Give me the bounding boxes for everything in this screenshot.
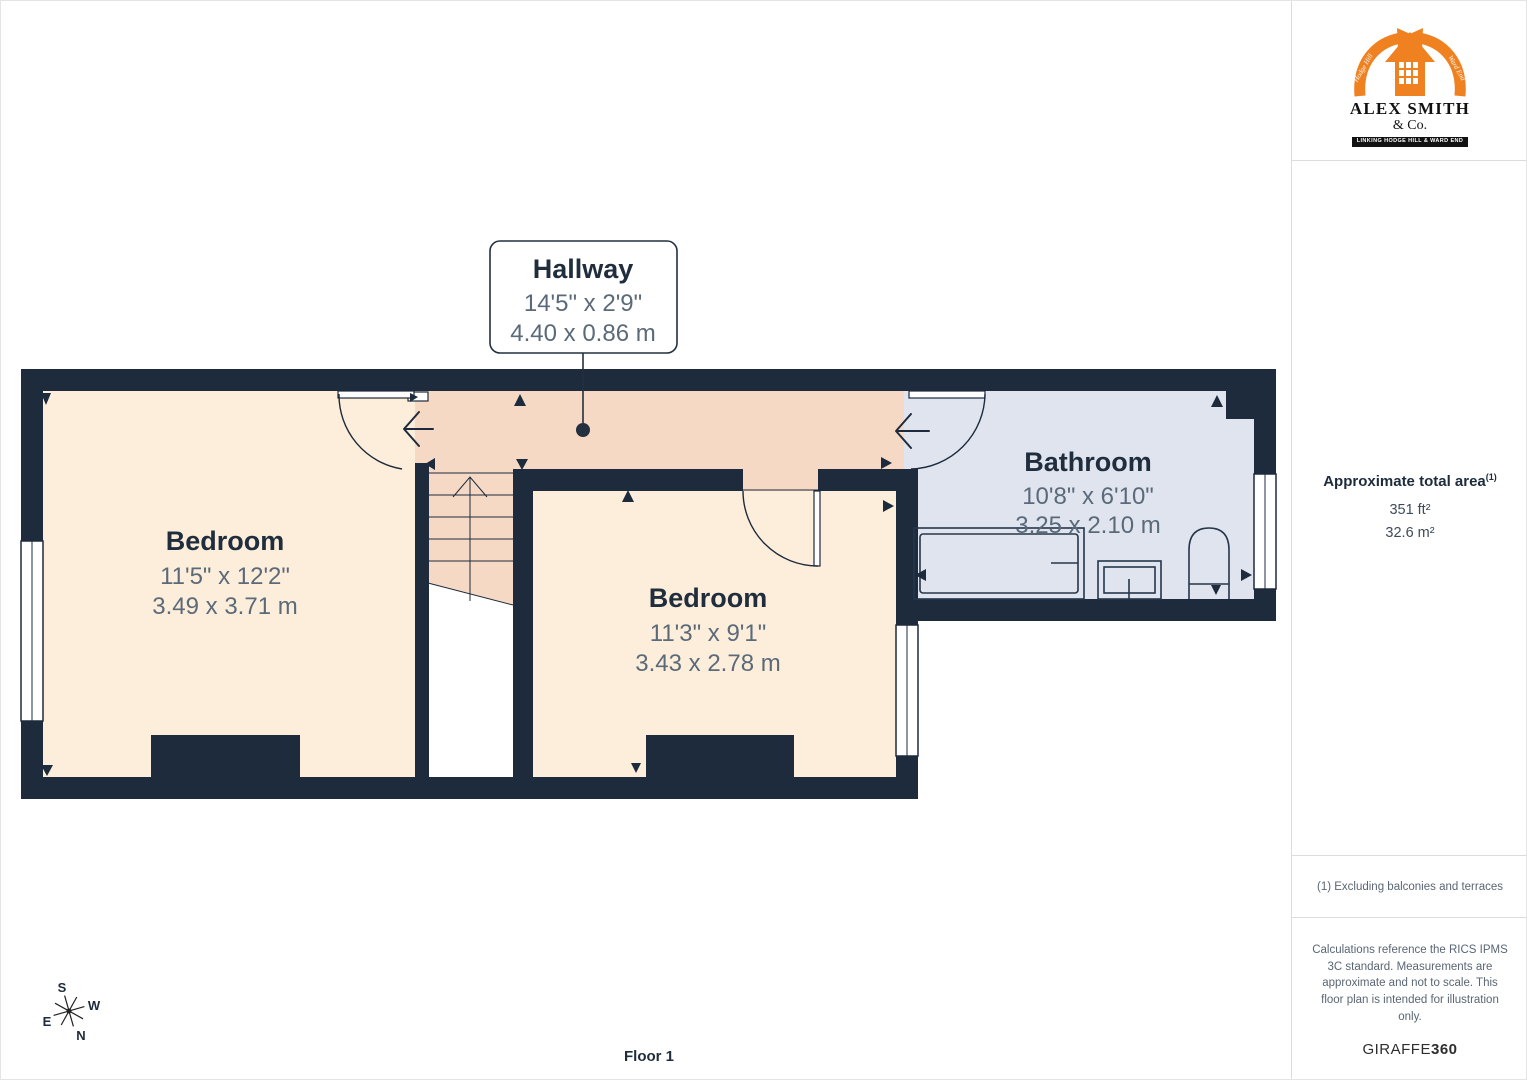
agency-tagline-banner: LINKING HODGE HILL & WARD END <box>1352 137 1469 147</box>
agency-logo-section: Hodge Hill Ward End ALEX SMITH & Co. LIN… <box>1292 1 1527 161</box>
callout-anchor-dot <box>576 423 590 437</box>
compass-center-dot <box>67 1009 72 1014</box>
bathroom-dims-imperial: 10'8" x 6'10" <box>1022 483 1154 510</box>
info-sidebar: Hodge Hill Ward End ALEX SMITH & Co. LIN… <box>1291 1 1527 1080</box>
agency-logo-icon: Hodge Hill Ward End <box>1335 20 1485 100</box>
staircase <box>428 469 513 777</box>
bedroom1-name: Bedroom <box>166 526 285 556</box>
bedroom1-door-leaf <box>338 391 414 398</box>
wall-bottom <box>21 777 918 799</box>
floor-plan: Bedroom 11'5" x 12'2" 3.49 x 3.71 m Bedr… <box>1 1 1291 1080</box>
stairs-void <box>428 583 513 777</box>
bedroom2-name: Bedroom <box>649 583 768 613</box>
footnote-section: (1) Excluding balconies and terraces <box>1292 856 1527 918</box>
footnote-text: (1) Excluding balconies and terraces <box>1317 881 1503 893</box>
bedroom2-dims-imperial: 11'3" x 9'1" <box>650 620 767 647</box>
brand-name: GIRAFFE <box>1362 1041 1431 1058</box>
hallway-dims-imperial: 14'5" x 2'9" <box>524 290 642 317</box>
compass-north: N <box>76 1028 85 1043</box>
logo-house-windows <box>1399 62 1418 84</box>
compass-west: W <box>88 998 101 1013</box>
agency-name: ALEX SMITH <box>1350 100 1470 118</box>
chimney-breast-bedroom1 <box>151 735 300 779</box>
disclaimer-section: Calculations reference the RICS IPMS 3C … <box>1292 918 1527 1080</box>
wall-bathroom-bottom <box>896 599 1276 621</box>
disclaimer-text: Calculations reference the RICS IPMS 3C … <box>1311 942 1509 1025</box>
bathroom-dims-metric: 3.25 x 2.10 m <box>1015 512 1160 539</box>
bathroom-door-leaf <box>909 391 985 398</box>
wall-top <box>21 369 1276 391</box>
bedroom1-dims-metric: 3.49 x 3.71 m <box>152 593 297 620</box>
wall-stairs-right <box>513 469 533 777</box>
bedroom1-dims-imperial: 11'5" x 12'2" <box>160 563 290 590</box>
total-area-title: Approximate total area(1) <box>1323 472 1497 490</box>
agency-name-suffix: & Co. <box>1393 118 1427 135</box>
compass-rose: S W E N <box>43 980 101 1043</box>
wall-hallway-bottom <box>513 469 918 491</box>
bedroom2-door-leaf <box>814 491 820 566</box>
bathroom-name: Bathroom <box>1024 447 1152 477</box>
hallway-floor <box>415 391 904 469</box>
compass-east: E <box>43 1014 52 1029</box>
hallway-dims-metric: 4.40 x 0.86 m <box>510 320 655 347</box>
total-area-title-text: Approximate total area <box>1323 473 1486 490</box>
giraffe360-brand: GIRAFFE360 <box>1362 1041 1457 1058</box>
compass-south: S <box>58 980 67 995</box>
total-area-section: Approximate total area(1) 351 ft² 32.6 m… <box>1292 161 1527 856</box>
total-area-metric: 32.6 m² <box>1385 522 1434 545</box>
floorplan-page: Bedroom 11'5" x 12'2" 3.49 x 3.71 m Bedr… <box>0 0 1527 1080</box>
footnote-marker: (1) <box>1486 472 1497 482</box>
total-area-imperial: 351 ft² <box>1389 499 1430 522</box>
wall-bathroom-notch <box>1226 391 1254 419</box>
wall-bedroom1-right <box>415 463 429 777</box>
bedroom2-dims-metric: 3.43 x 2.78 m <box>635 650 780 677</box>
hallway-name: Hallway <box>533 254 634 284</box>
brand-suffix: 360 <box>1431 1041 1458 1058</box>
bedroom2-door-opening <box>743 469 818 491</box>
chimney-breast-bedroom2 <box>646 735 794 779</box>
floor-label: Floor 1 <box>624 1048 674 1065</box>
